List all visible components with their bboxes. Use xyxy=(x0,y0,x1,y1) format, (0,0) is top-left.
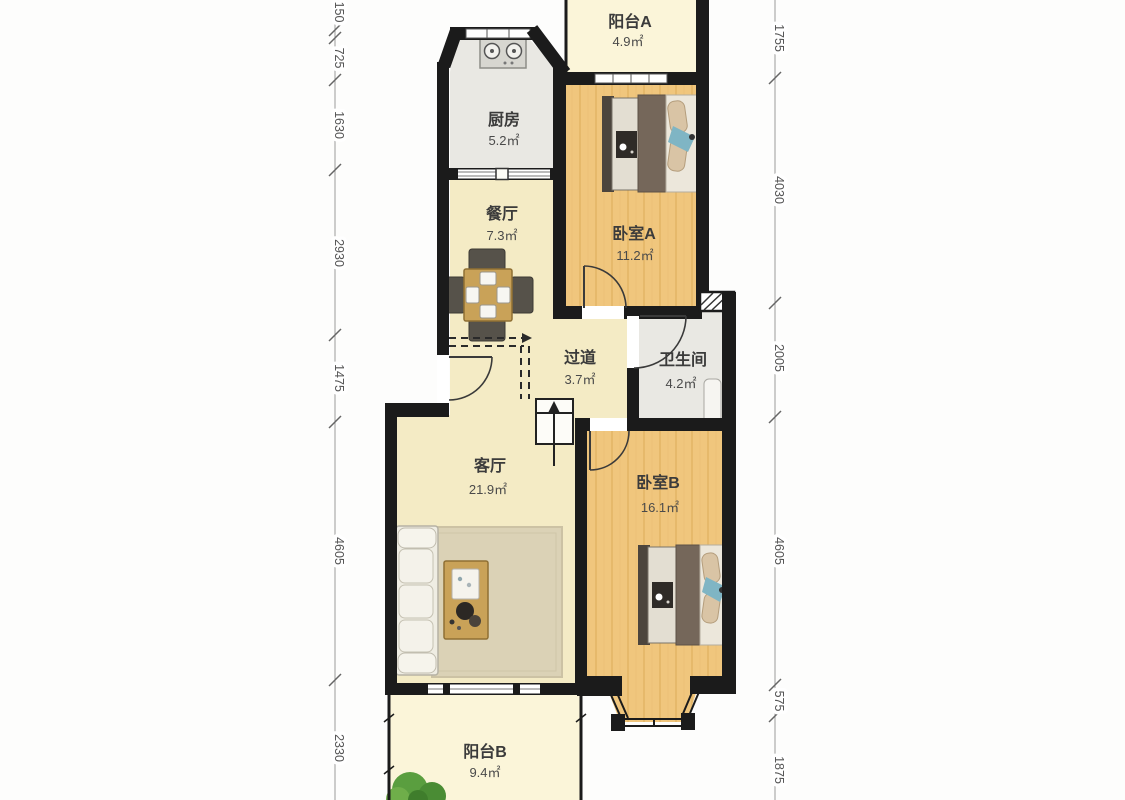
dim-left-6: 2330 xyxy=(332,734,346,762)
dim-right-3: 4605 xyxy=(772,537,786,565)
stove-icon xyxy=(480,38,526,68)
dimension-line-right: 1755 4030 2005 4605 575 1875 xyxy=(769,0,786,800)
dim-left-1: 725 xyxy=(332,48,346,69)
dim-right-0: 1755 xyxy=(772,24,786,52)
label-dining-area: 7.3㎡ xyxy=(486,228,517,243)
label-dining-name: 餐厅 xyxy=(485,204,518,223)
floorplan-svg: 阳台A 4.9㎡ 厨房 5.2㎡ 餐厅 7.3㎡ 卧室A 11.2㎡ 过道 3.… xyxy=(0,0,1125,800)
label-bedroom-b-name: 卧室B xyxy=(636,473,680,492)
bed-a xyxy=(638,95,668,192)
dim-right-5: 1875 xyxy=(772,756,786,784)
bedroom-b-furniture xyxy=(638,545,730,645)
living-furniture xyxy=(396,526,562,677)
tv-a-icon xyxy=(616,131,637,158)
label-bathroom-area: 4.2㎡ xyxy=(665,376,696,391)
label-living-area: 21.9㎡ xyxy=(469,482,507,497)
dim-left-3: 2930 xyxy=(332,239,346,267)
dimension-line-left: 150 725 1630 2930 1475 4605 2330 xyxy=(329,0,346,800)
dim-right-4: 575 xyxy=(772,691,786,712)
label-bedroom-b-area: 16.1㎡ xyxy=(641,500,679,515)
dim-left-5: 4605 xyxy=(332,537,346,565)
dim-right-2: 2005 xyxy=(772,344,786,372)
label-bathroom-name: 卫生间 xyxy=(659,350,707,369)
label-balcony-a-area: 4.9㎡ xyxy=(612,34,643,49)
dim-left-0: 150 xyxy=(332,2,346,23)
coffee-table xyxy=(444,561,488,639)
dim-left-2: 1630 xyxy=(332,111,346,139)
label-balcony-a-name: 阳台A xyxy=(608,12,652,31)
label-bedroom-a-name: 卧室A xyxy=(612,224,656,243)
label-balcony-b-name: 阳台B xyxy=(463,742,507,761)
label-kitchen-area: 5.2㎡ xyxy=(488,133,519,148)
label-balcony-b-area: 9.4㎡ xyxy=(469,765,500,780)
tv-b-icon xyxy=(652,582,673,608)
dim-left-4: 1475 xyxy=(332,364,346,392)
label-bedroom-a-area: 11.2㎡ xyxy=(616,248,653,263)
sofa xyxy=(396,526,438,675)
floorplan-image: 阳台A 4.9㎡ 厨房 5.2㎡ 餐厅 7.3㎡ 卧室A 11.2㎡ 过道 3.… xyxy=(0,0,1125,800)
label-hallway-name: 过道 xyxy=(564,348,596,367)
label-hallway-area: 3.7㎡ xyxy=(564,372,595,387)
label-living-name: 客厅 xyxy=(474,456,506,475)
bed-b xyxy=(676,545,702,645)
label-kitchen-name: 厨房 xyxy=(488,110,520,129)
bedroom-a-furniture xyxy=(602,95,700,192)
dim-right-1: 4030 xyxy=(772,176,786,204)
